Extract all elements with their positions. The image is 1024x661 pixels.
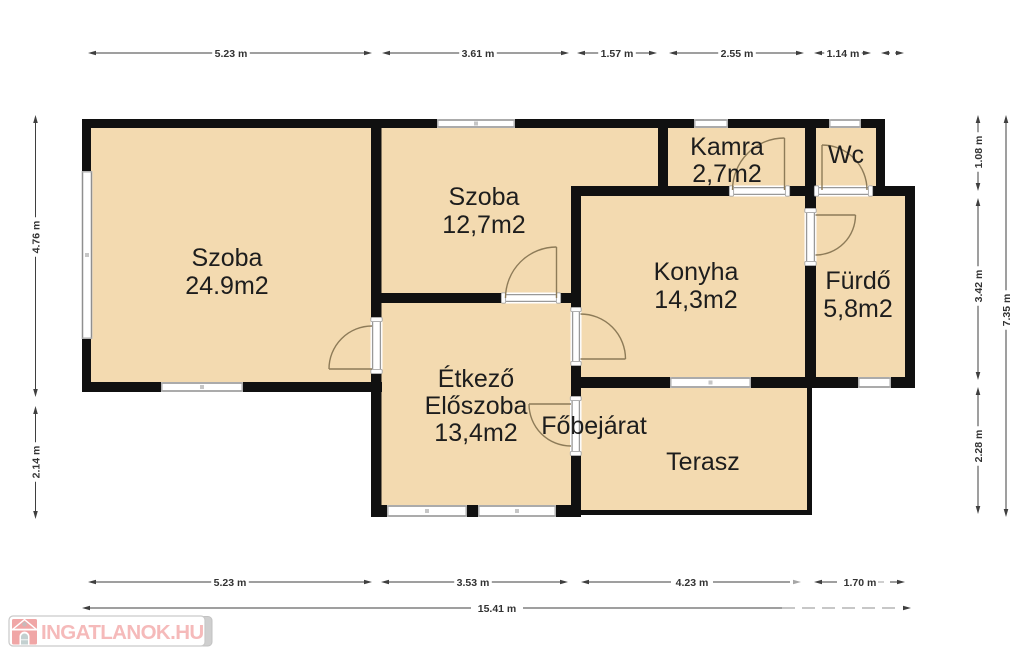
svg-text:INGATLANOK.HU: INGATLANOK.HU — [41, 621, 204, 644]
svg-text:14,3m2: 14,3m2 — [654, 286, 737, 314]
svg-text:1.08 m: 1.08 m — [973, 136, 985, 169]
svg-text:1.57 m: 1.57 m — [601, 48, 634, 60]
svg-text:Kamra: Kamra — [690, 133, 764, 161]
svg-text:1.70 m: 1.70 m — [844, 577, 877, 589]
svg-text:7.35 m: 7.35 m — [1001, 294, 1013, 327]
svg-text:3.53 m: 3.53 m — [457, 577, 490, 589]
svg-text:Fürdő: Fürdő — [825, 267, 890, 295]
svg-text:Étkező: Étkező — [438, 364, 514, 393]
svg-text:1.14 m: 1.14 m — [827, 48, 860, 60]
svg-text:Előszoba: Előszoba — [425, 392, 528, 420]
svg-text:Szoba: Szoba — [192, 244, 263, 272]
svg-text:2.28 m: 2.28 m — [973, 430, 985, 463]
svg-text:Wc: Wc — [828, 141, 864, 169]
svg-text:2.55 m: 2.55 m — [721, 48, 754, 60]
svg-text:13,4m2: 13,4m2 — [434, 419, 517, 447]
svg-text:5.23 m: 5.23 m — [215, 48, 248, 60]
svg-text:12,7m2: 12,7m2 — [442, 211, 525, 239]
svg-text:3.61 m: 3.61 m — [462, 48, 495, 60]
svg-text:24.9m2: 24.9m2 — [185, 272, 268, 300]
svg-text:2,7m2: 2,7m2 — [692, 160, 761, 188]
svg-text:15.41 m: 15.41 m — [478, 603, 517, 615]
svg-text:3.42 m: 3.42 m — [973, 270, 985, 303]
svg-text:5,8m2: 5,8m2 — [823, 295, 892, 323]
svg-text:Főbejárat: Főbejárat — [541, 412, 647, 440]
svg-text:Szoba: Szoba — [449, 183, 520, 211]
svg-text:4.76 m: 4.76 m — [30, 221, 42, 254]
svg-text:4.23 m: 4.23 m — [676, 577, 709, 589]
svg-text:Terasz: Terasz — [666, 448, 740, 476]
svg-text:Konyha: Konyha — [654, 258, 739, 286]
svg-text:5.23 m: 5.23 m — [214, 577, 247, 589]
svg-text:2.14 m: 2.14 m — [30, 446, 42, 479]
